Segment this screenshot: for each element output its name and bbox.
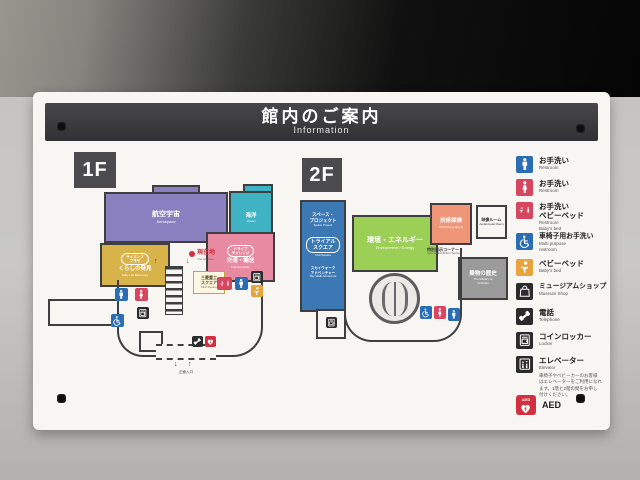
history-label-en2: Vehicles	[477, 282, 488, 286]
wheelchair-icon	[516, 233, 533, 250]
legend-sublabel: Elevator	[539, 365, 609, 371]
entrance-label: 正面入口	[157, 370, 215, 375]
aed-icon: AED	[516, 395, 536, 415]
legend-label: AED	[542, 400, 561, 411]
locker-icon	[326, 317, 337, 328]
legend-label: ベビーベッド	[539, 259, 584, 268]
legend-sublabel: Telephone	[539, 317, 560, 323]
board-title-bar: 館内のご案内 Information	[45, 103, 598, 141]
locker-icon	[251, 271, 263, 283]
elevator-icon	[516, 356, 533, 373]
ceiling-shadow	[0, 0, 640, 97]
museum-shop-icon	[516, 283, 533, 300]
womens-restroom-icon	[434, 306, 446, 319]
legend-row-aed: AED AED	[516, 395, 561, 415]
daily-life-attraction-badge: サイエンス プラザ	[121, 253, 148, 266]
telephone-icon	[192, 336, 203, 347]
atrium-circle	[369, 273, 420, 324]
room-transport-label-en: Transportation	[231, 266, 250, 270]
legend-label: 車椅子用お手洗い	[539, 233, 593, 241]
you-are-here-jp: 現在地	[197, 250, 215, 257]
legend-row-womens-restroom: お手洗い Restroom	[516, 179, 569, 196]
legend-label: 電話	[539, 308, 560, 317]
legend-label: コインロッカー	[539, 332, 592, 341]
legend-label: エレベーター	[539, 356, 609, 365]
space-label-en: Space Project	[314, 224, 333, 228]
room-technology-quest: 技術探検 Technology Quest	[430, 203, 472, 245]
restroom-baby-icon	[516, 202, 533, 219]
stairs-up-arrow: ↑	[154, 258, 158, 265]
mens-restroom-icon	[516, 156, 533, 173]
legend-row-wheelchair-restroom: 車椅子用お手洗い Multi purpose restroom	[516, 233, 593, 253]
av-room-label-en: Audiovisual Room	[479, 223, 503, 227]
board-title-jp: 館内のご案内	[262, 108, 382, 127]
legend-row-restroom-baby: お手洗い ベビーベッド Restroom Baby's bed	[516, 202, 584, 232]
legend-label: ミュージアムショップ	[539, 283, 606, 291]
legend-sublabel: Restroom	[539, 165, 569, 171]
restroom-baby-icon	[217, 277, 232, 290]
atrium-core	[382, 282, 408, 316]
entrance-up-arrow: ↑	[188, 361, 192, 368]
legend-sublabel-line2: Baby's bed	[539, 226, 584, 232]
you-are-here-marker: 現在地 You are here	[189, 250, 215, 261]
you-are-here-dot	[189, 251, 195, 257]
baby-bed-icon	[251, 285, 263, 297]
legend-row-telephone: 電話 Telephone	[516, 308, 560, 325]
trial-square-en: Trial Square	[315, 254, 331, 258]
elevator-note-line2: はエレベーターをご利用になれ	[539, 379, 602, 384]
legend-label-line2: ベビーベッド	[539, 211, 584, 220]
floor1-left-corridor	[48, 299, 118, 326]
transport-badge-line2: チャレンジ	[232, 251, 249, 255]
mens-restroom-icon	[235, 277, 248, 290]
technology-label-en: Technology Quest	[439, 226, 463, 230]
room-ocean-label-en: Ocean	[247, 220, 256, 224]
trial-square-badge: トライアル スクエア	[306, 237, 341, 254]
legend-sublabel: Museum Shop	[539, 291, 606, 297]
trial-line2: スクエア	[313, 245, 333, 251]
legend-sublabel: Baby's bed	[539, 268, 584, 274]
floor1-stairs	[165, 266, 183, 315]
legend-row-museum-shop: ミュージアムショップ Museum Shop	[516, 283, 606, 300]
photo-scene: 館内のご案内 Information 1F 航空宇宙 Aerospace 海洋 …	[0, 0, 640, 480]
baby-bed-icon	[516, 259, 533, 276]
floor1-badge: 1F	[74, 152, 116, 188]
womens-restroom-icon	[516, 179, 533, 196]
room-av: 映像ルーム Audiovisual Room	[476, 205, 507, 239]
you-are-here-en: You are here	[197, 257, 215, 261]
room-aerospace-label-jp: 航空宇宙	[152, 210, 180, 219]
environment-label-jp: 環境・エネルギー	[367, 236, 423, 245]
legend-sublabel: Restroom	[539, 188, 569, 194]
transport-attraction-badge: ドライブ チャレンジ	[227, 245, 254, 258]
room-vehicle-history: 乗物の歴史 The History of Vehicles	[458, 257, 508, 300]
legend-label: お手洗い	[539, 156, 569, 165]
legend-label: お手洗い	[539, 202, 584, 211]
mhi-en: MHI Square	[201, 286, 217, 290]
legend-sublabel-line2: restroom	[539, 247, 593, 253]
aed-icon-text: AED	[516, 397, 536, 402]
skywalk-en: Sky Walk Adventure	[310, 275, 337, 279]
screw-bottom-left	[57, 394, 66, 403]
legend-row-locker: コインロッカー Locker	[516, 332, 592, 349]
room-daily-label-en: Daily Life Discovery	[122, 274, 148, 278]
locker-icon	[516, 332, 533, 349]
legend-sublabel: Locker	[539, 341, 592, 347]
entrance-down-arrow: ↓	[174, 361, 178, 368]
mens-restroom-icon	[448, 308, 460, 321]
screw-top-right	[576, 124, 585, 133]
room-space-project: スペース・ プロジェクト Space Project トライアル スクエア Tr…	[300, 200, 346, 312]
daily-badge-line2: プラザ	[130, 259, 141, 263]
locker-icon	[137, 307, 149, 319]
board-title-en: Information	[293, 126, 349, 136]
aed-icon	[205, 336, 216, 347]
wheelchair-restroom-icon	[420, 306, 432, 319]
elevator-note-line3: ます。1階と2階の間をお申し	[539, 386, 598, 391]
mens-restroom-icon	[115, 288, 128, 301]
womens-restroom-icon	[135, 288, 148, 301]
legend-label: お手洗い	[539, 179, 569, 188]
wheelchair-restroom-icon	[111, 314, 124, 327]
floor2-badge: 2F	[302, 158, 342, 192]
legend-row-mens-restroom: お手洗い Restroom	[516, 156, 569, 173]
trial-line1: トライアル	[311, 239, 336, 245]
legend-row-baby-bed: ベビーベッド Baby's bed	[516, 259, 584, 276]
elevator-note-line1: 車椅子やベビーカーのお客様	[539, 373, 598, 378]
room-aerospace-label-en: Aerospace	[156, 219, 175, 224]
screw-top-left	[57, 122, 66, 131]
telephone-icon	[516, 308, 533, 325]
legend-row-elevator: エレベーター Elevator 車椅子やベビーカーのお客様 はエレベーターをご利…	[516, 356, 609, 399]
